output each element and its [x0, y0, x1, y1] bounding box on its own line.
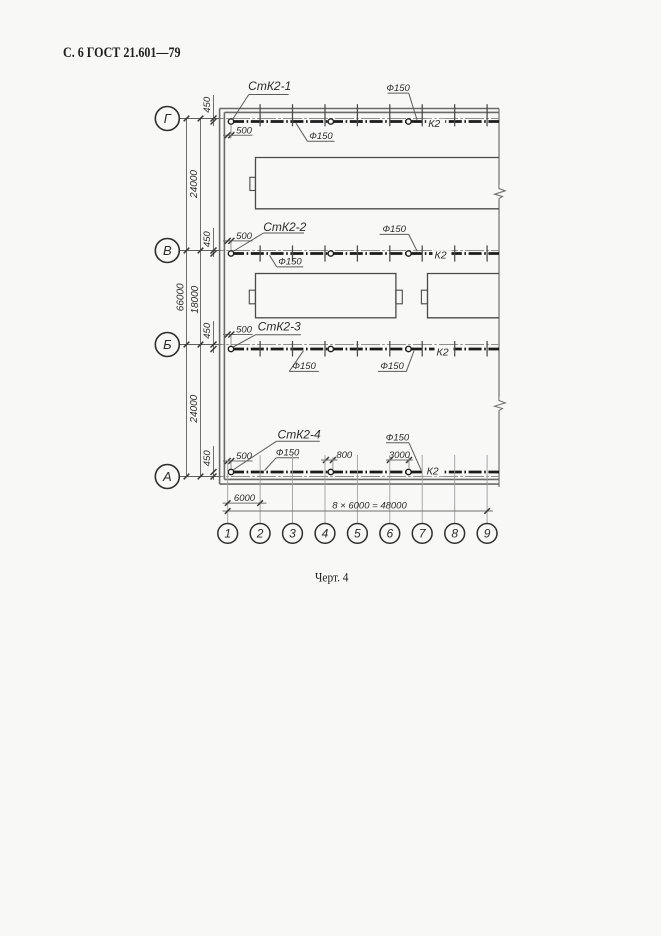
svg-text:4: 4 [322, 527, 329, 541]
svg-text:500: 500 [236, 125, 253, 136]
svg-text:450: 450 [202, 450, 213, 467]
svg-text:А: А [162, 469, 172, 484]
svg-text:СтК2-2: СтК2-2 [263, 220, 306, 234]
svg-text:СтК2-1: СтК2-1 [248, 79, 291, 93]
svg-text:66000: 66000 [176, 283, 187, 311]
svg-text:Б: Б [163, 337, 172, 352]
svg-text:500: 500 [236, 451, 253, 462]
svg-text:8: 8 [451, 527, 458, 541]
svg-text:Ф150: Ф150 [386, 433, 410, 444]
svg-text:450: 450 [202, 96, 213, 113]
svg-text:6: 6 [386, 527, 393, 541]
svg-text:5: 5 [354, 527, 361, 541]
svg-text:8 × 6000 = 48000: 8 × 6000 = 48000 [332, 500, 407, 511]
svg-text:К2: К2 [427, 465, 439, 477]
svg-text:Ф150: Ф150 [386, 83, 410, 94]
svg-text:Ф150: Ф150 [278, 257, 302, 268]
svg-text:450: 450 [202, 322, 213, 339]
svg-text:18000: 18000 [190, 285, 201, 313]
svg-text:СтК2-3: СтК2-3 [258, 319, 301, 333]
svg-text:24000: 24000 [189, 394, 200, 423]
svg-text:24000: 24000 [189, 170, 200, 199]
svg-text:3: 3 [289, 527, 296, 541]
svg-text:К2: К2 [428, 118, 440, 130]
svg-text:Черт. 4: Черт. 4 [315, 570, 349, 584]
svg-text:500: 500 [236, 231, 253, 242]
svg-text:800: 800 [336, 450, 353, 461]
svg-text:3000: 3000 [389, 450, 411, 461]
svg-text:Ф150: Ф150 [382, 224, 406, 235]
svg-text:Ф150: Ф150 [276, 448, 300, 459]
svg-text:450: 450 [202, 231, 213, 248]
svg-text:Ф150: Ф150 [380, 361, 404, 372]
svg-text:К2: К2 [437, 347, 449, 359]
svg-text:С. 6 ГОСТ 21.601—79: С. 6 ГОСТ 21.601—79 [63, 45, 181, 61]
svg-text:СтК2-4: СтК2-4 [278, 427, 321, 441]
svg-text:К2: К2 [435, 249, 447, 261]
svg-text:Г: Г [164, 111, 172, 126]
svg-text:2: 2 [256, 527, 264, 541]
svg-text:В: В [163, 243, 172, 258]
svg-text:Ф150: Ф150 [309, 131, 333, 142]
svg-text:9: 9 [484, 527, 491, 541]
svg-text:500: 500 [236, 325, 253, 336]
svg-text:Ф150: Ф150 [292, 361, 316, 372]
svg-text:1: 1 [224, 527, 231, 541]
svg-text:6000: 6000 [234, 493, 256, 504]
